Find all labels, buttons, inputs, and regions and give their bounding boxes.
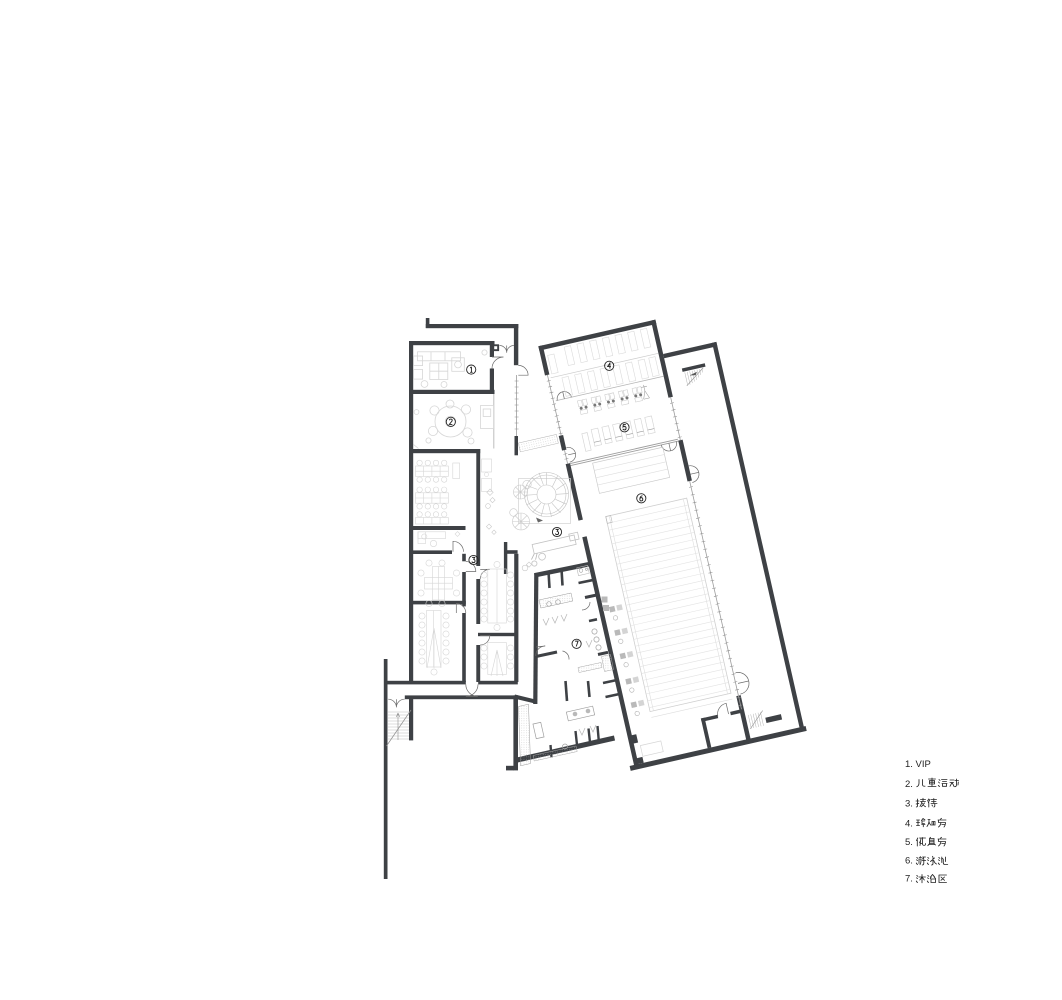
svg-text:3.: 3. bbox=[905, 799, 913, 810]
svg-text:1. VIP: 1. VIP bbox=[905, 759, 931, 770]
svg-text:6.: 6. bbox=[905, 856, 913, 867]
svg-text:7.: 7. bbox=[905, 874, 913, 885]
svg-text:2.: 2. bbox=[905, 779, 913, 790]
svg-text:4.: 4. bbox=[905, 819, 913, 830]
svg-text:5.: 5. bbox=[905, 837, 913, 848]
